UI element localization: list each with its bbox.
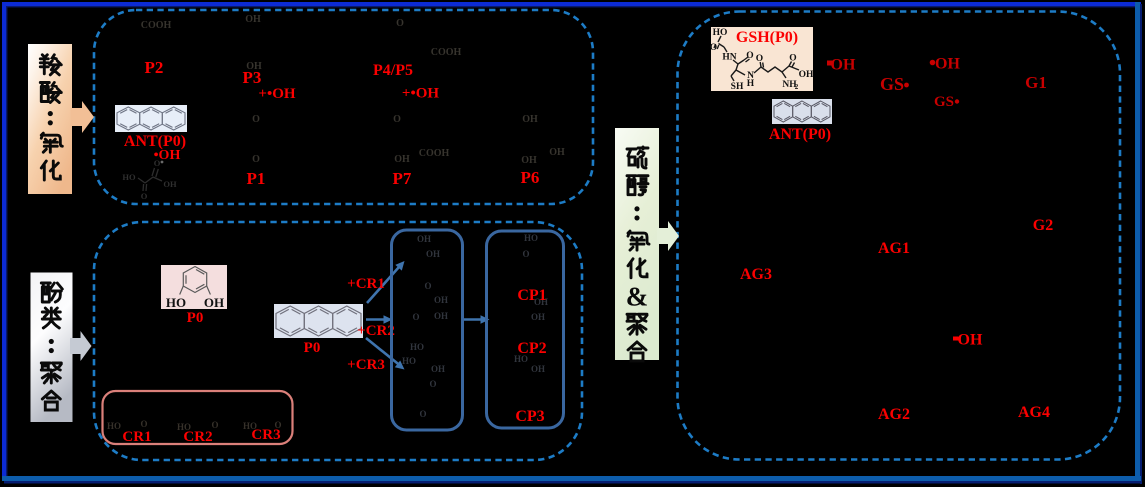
svg-text:OH: OH <box>163 179 177 189</box>
svg-text:OH: OH <box>549 147 565 158</box>
svg-text:GS: GS <box>934 94 954 110</box>
svg-text:OH: OH <box>799 70 814 80</box>
svg-text:ANT(P0): ANT(P0) <box>769 126 831 143</box>
svg-text:OH: OH <box>426 249 440 259</box>
svg-text:O: O <box>252 154 260 165</box>
svg-text:O: O <box>746 51 753 61</box>
svg-text:GSH(P0): GSH(P0) <box>736 29 798 46</box>
svg-text:OH: OH <box>531 312 545 322</box>
svg-text:G2: G2 <box>1033 217 1053 234</box>
svg-text:O: O <box>419 409 426 419</box>
svg-text:2: 2 <box>795 83 799 91</box>
svg-text:+CR1: +CR1 <box>347 276 385 292</box>
svg-text:&: & <box>626 282 649 312</box>
svg-text:HO: HO <box>713 28 728 38</box>
svg-text:G1: G1 <box>1025 73 1047 92</box>
svg-text:HO: HO <box>107 421 121 431</box>
svg-text:H: H <box>747 79 755 89</box>
svg-text:CR2: CR2 <box>183 429 212 445</box>
svg-text:OH: OH <box>204 295 224 310</box>
svg-text:COOH: COOH <box>141 20 172 31</box>
svg-text:O: O <box>412 312 419 322</box>
svg-text:•OH: •OH <box>154 148 181 163</box>
svg-text:OH: OH <box>531 364 545 374</box>
svg-text:P7: P7 <box>393 169 412 188</box>
svg-text:+CR2: +CR2 <box>357 323 395 339</box>
svg-text:OH: OH <box>417 234 431 244</box>
svg-text:O: O <box>396 18 404 29</box>
svg-text:OH: OH <box>434 295 448 305</box>
svg-text:OH: OH <box>935 56 960 73</box>
svg-text:OH: OH <box>521 155 537 166</box>
svg-text:HO: HO <box>122 172 136 182</box>
svg-text:+•OH: +•OH <box>258 86 295 102</box>
svg-text:O: O <box>756 54 763 64</box>
svg-text:P1: P1 <box>247 169 266 188</box>
svg-text:HO: HO <box>166 295 186 310</box>
svg-text:HO: HO <box>402 356 416 366</box>
svg-text:P0: P0 <box>187 310 204 326</box>
svg-text:COOH: COOH <box>419 148 450 159</box>
svg-text:OH: OH <box>245 14 261 25</box>
svg-text:AG3: AG3 <box>740 266 772 283</box>
svg-text:CP3: CP3 <box>515 408 544 425</box>
svg-text:O: O <box>710 43 717 53</box>
svg-text:AG2: AG2 <box>878 406 910 423</box>
svg-text:CP2: CP2 <box>517 340 546 357</box>
svg-text:OH: OH <box>434 311 448 321</box>
svg-text:+•OH: +•OH <box>402 86 439 102</box>
svg-text:O: O <box>424 281 431 291</box>
svg-text:P2: P2 <box>145 58 164 77</box>
svg-text:P4/P5: P4/P5 <box>373 62 413 79</box>
svg-text:+CR3: +CR3 <box>347 357 385 373</box>
svg-text:AG1: AG1 <box>878 240 910 257</box>
svg-text:OH: OH <box>522 114 538 125</box>
svg-text:O: O <box>789 54 796 64</box>
svg-text:HN: HN <box>722 53 736 63</box>
svg-text:O: O <box>140 419 147 429</box>
svg-text:P3: P3 <box>243 68 262 87</box>
svg-text:AG4: AG4 <box>1018 404 1050 421</box>
svg-text:O: O <box>393 114 401 125</box>
svg-text:P6: P6 <box>521 168 540 187</box>
svg-text:CR3: CR3 <box>251 427 280 443</box>
svg-text:O: O <box>141 191 148 201</box>
svg-text:COOH: COOH <box>431 47 462 58</box>
svg-text:O: O <box>429 379 436 389</box>
svg-text:SH: SH <box>731 82 744 92</box>
svg-text:CR1: CR1 <box>122 429 151 445</box>
svg-text:OH: OH <box>431 364 445 374</box>
svg-text:OH: OH <box>831 57 856 74</box>
svg-text:GS: GS <box>880 74 904 94</box>
svg-text:HO: HO <box>410 342 424 352</box>
svg-text:OH: OH <box>958 332 983 349</box>
svg-text:CP1: CP1 <box>517 287 546 304</box>
svg-text:P0: P0 <box>304 340 321 356</box>
svg-text:O: O <box>252 114 260 125</box>
svg-text:OH: OH <box>394 154 410 165</box>
svg-text:O: O <box>522 249 529 259</box>
svg-text:HO: HO <box>524 233 538 243</box>
